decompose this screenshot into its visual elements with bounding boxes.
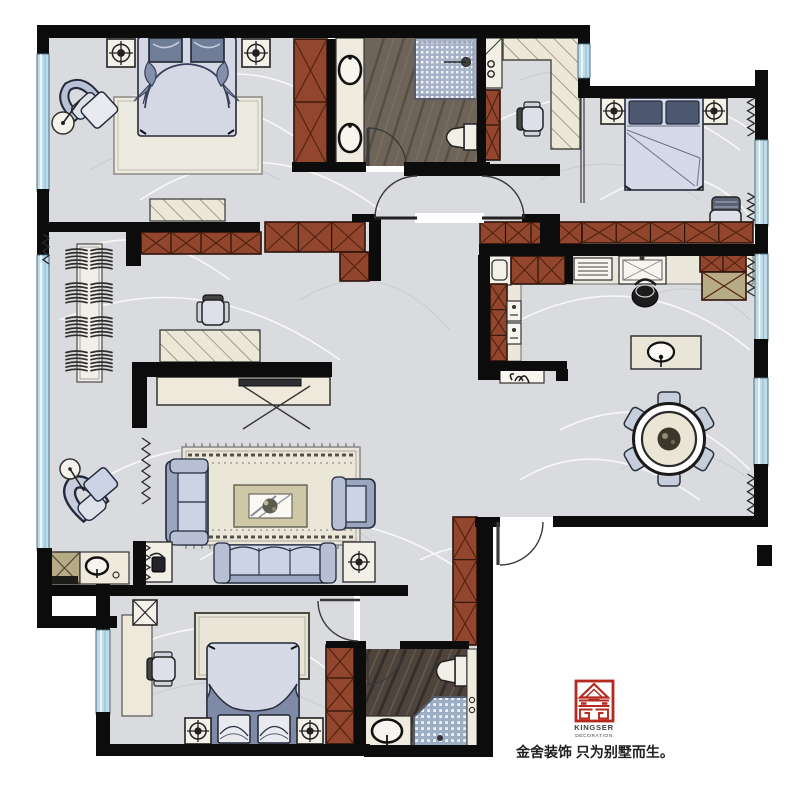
svg-text:KINGSER: KINGSER bbox=[574, 723, 614, 732]
svg-text:金舍装饰 只为别墅而生。: 金舍装饰 只为别墅而生。 bbox=[515, 744, 674, 760]
svg-text:DECORATION: DECORATION bbox=[575, 733, 613, 739]
